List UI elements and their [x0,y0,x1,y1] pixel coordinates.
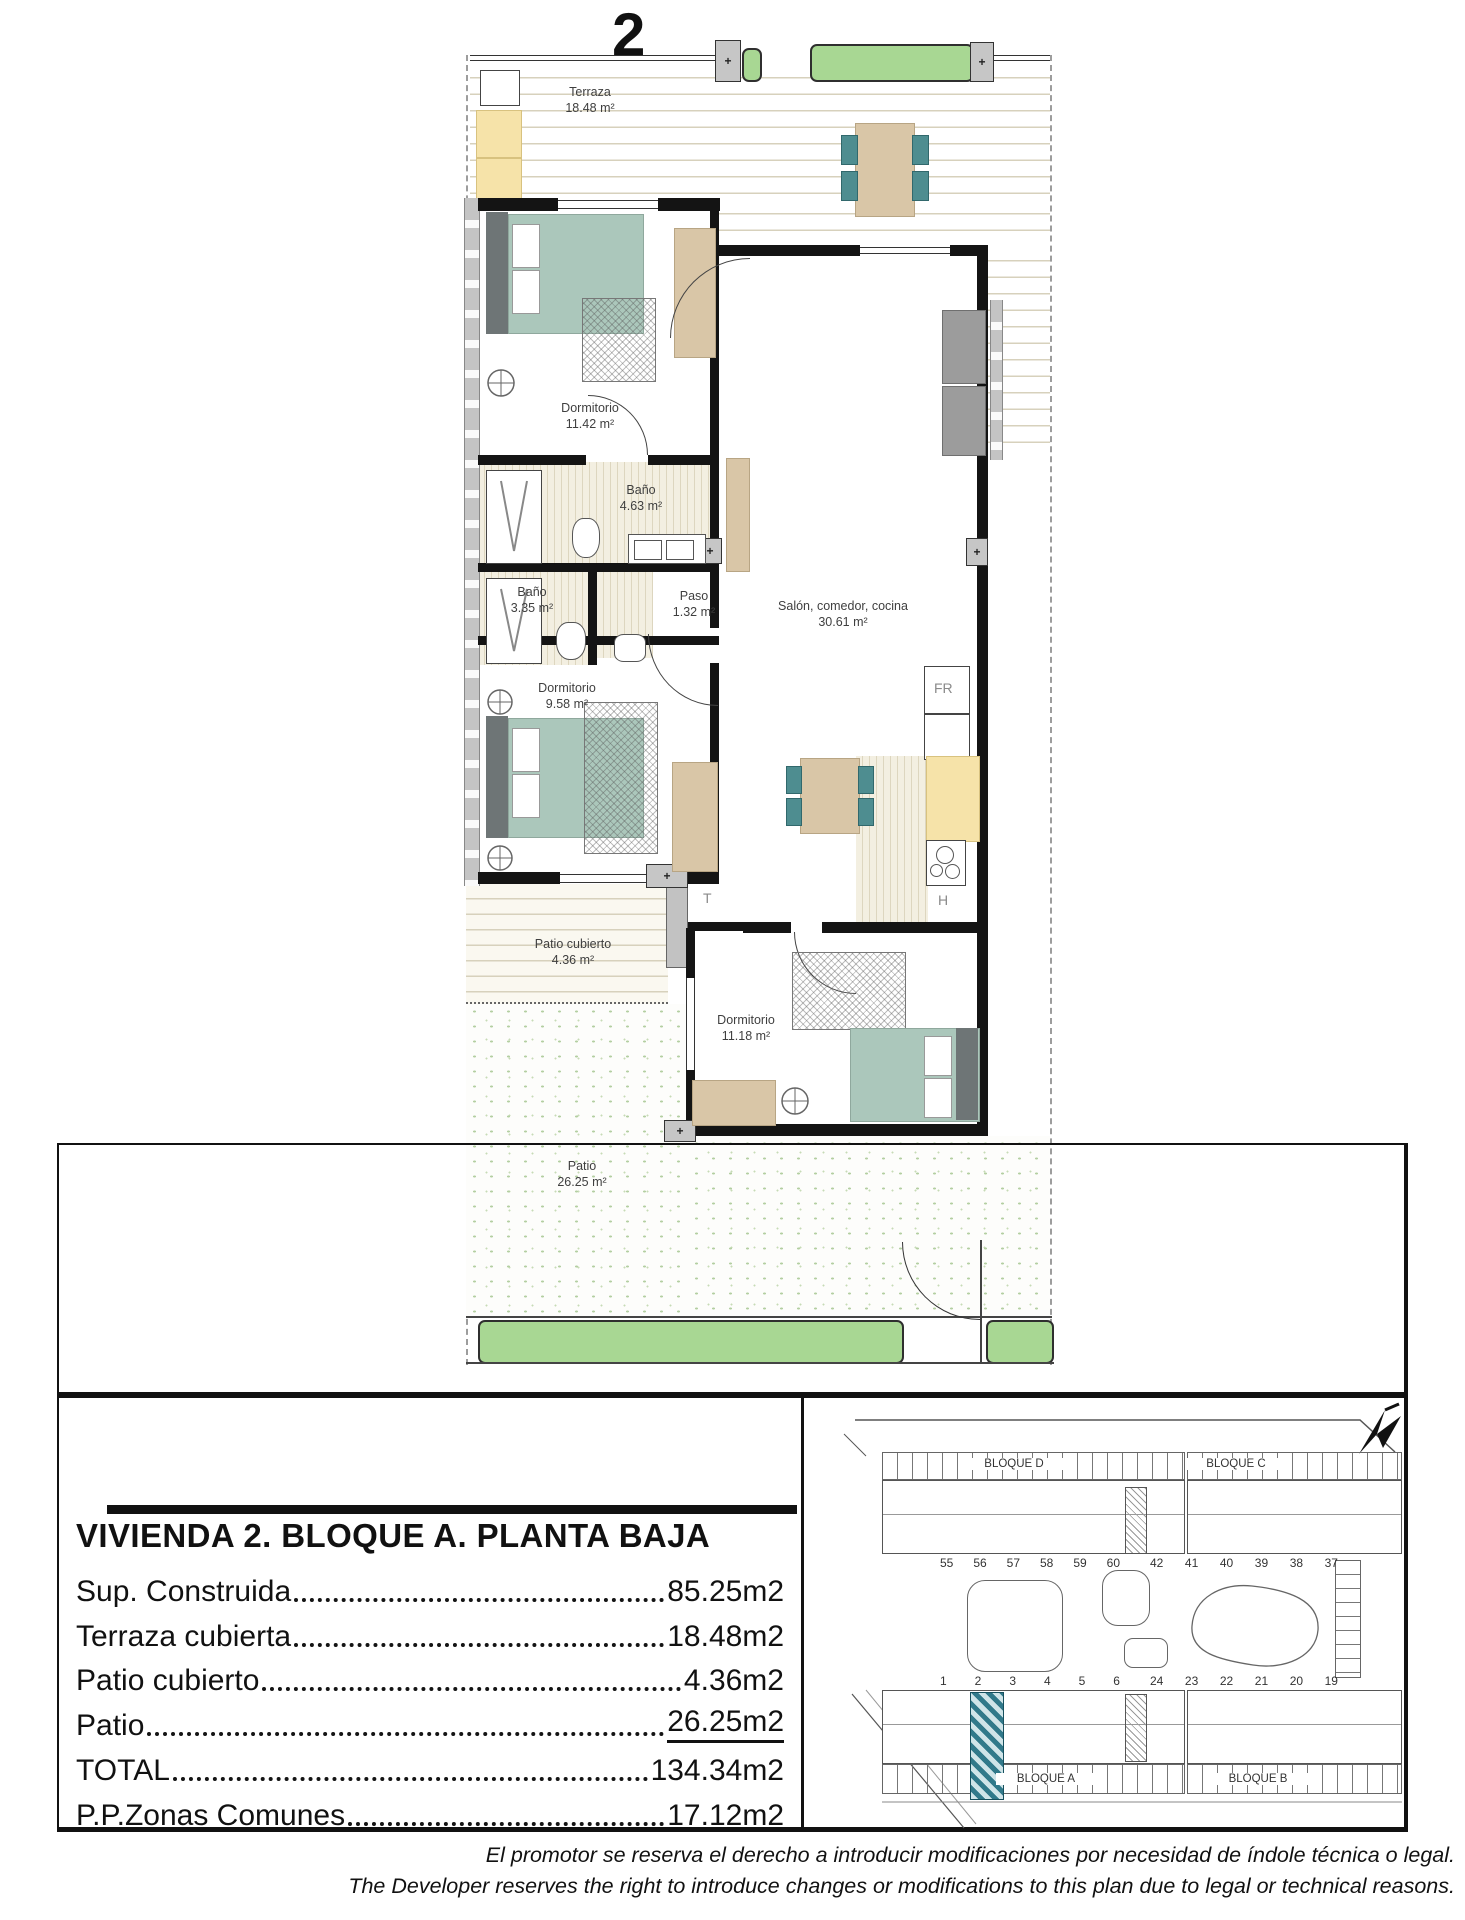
hedge-top-small [742,48,762,82]
site-unit: 20 [1290,1674,1303,1688]
room-label-paso: Paso1.32 m² [673,588,715,621]
pool [967,1580,1063,1672]
pillow [512,774,540,818]
cabinet [726,458,750,572]
site-unit: 3 [1009,1674,1016,1688]
terrace-fence [470,55,718,61]
pillow [924,1036,952,1076]
dining-chair [858,766,874,794]
site-unit: 24 [1150,1674,1163,1688]
site-unit: 6 [1113,1674,1120,1688]
sofa [942,386,986,456]
dining-chair [786,766,802,794]
burner [930,864,943,877]
terrace-decking [470,62,1050,198]
terrace-chair [912,135,929,165]
pillow [924,1078,952,1118]
wall-post: + [966,538,988,566]
north-arrow-icon [1359,1404,1401,1454]
site-unit: 21 [1255,1674,1268,1688]
info-row: Sup. Construida85.25m2 [76,1564,784,1609]
sofa [942,310,986,384]
rug [792,952,906,1030]
site-unit: 19 [1325,1674,1338,1688]
disclaimer-en: The Developer reserves the right to intr… [348,1874,1455,1899]
site-unit: 5 [1079,1674,1086,1688]
storage-box [476,110,522,158]
mat [692,1080,776,1126]
site-unit: 2 [975,1674,982,1688]
terrace-chair [841,135,858,165]
burner [936,846,954,864]
room-label-dormitorio-1: Dormitorio11.42 m² [561,400,619,433]
block-label-c: BLOQUE C [1186,1458,1286,1470]
hob-label: H [938,892,948,908]
title-bar [107,1505,797,1514]
site-unit: 42 [1150,1556,1163,1570]
site-unit: 58 [1040,1556,1053,1570]
site-unit: 55 [940,1556,953,1570]
pool [1124,1638,1168,1668]
dining-chair [786,798,802,826]
pillow [512,270,540,314]
block-label-a: BLOQUE A [996,1773,1096,1785]
site-unit: 56 [973,1556,986,1570]
wardrobe [672,762,718,872]
toilet [556,622,586,660]
hedge-top [810,44,974,82]
wall-post: + [970,42,994,82]
info-row: Terraza cubierta18.48m2 [76,1609,784,1654]
rug [582,298,656,382]
info-row: Patio cubierto4.36m2 [76,1654,784,1699]
terrace-chair [912,171,929,201]
site-unit: 22 [1220,1674,1233,1688]
site-plan: 555657585960 424140393837 123456 2423222… [804,1394,1408,1832]
site-unit: 57 [1007,1556,1020,1570]
dining-table [800,758,860,834]
oven [924,714,970,760]
bed-headboard [956,1028,978,1120]
room-label-patio-cubierto: Patio cubierto4.36 m² [535,936,611,969]
site-unit: 41 [1185,1556,1198,1570]
room-label-dormitorio-3: Dormitorio11.18 m² [717,1012,775,1045]
room-label-terraza: Terraza18.48 m² [565,84,614,117]
ceiling-light-icon [780,1086,810,1121]
floor-plan-page: 2 + + [0,0,1465,1920]
site-unit: 40 [1220,1556,1233,1570]
sink [666,540,694,560]
pool [1102,1570,1150,1626]
info-row: P.P.Zonas Comunes17.12m2 [76,1788,784,1833]
site-unit: 59 [1073,1556,1086,1570]
site-unit: 23 [1185,1674,1198,1688]
room-label-salon: Salón, comedor, cocina30.61 m² [778,598,908,631]
ceiling-light-icon [486,368,516,403]
bed-headboard [486,212,508,334]
terrace-chair [841,171,858,201]
bottom-panel: VIVIENDA 2. BLOQUE A. PLANTA BAJA Sup. C… [57,1143,1408,1832]
unit-numbers-row: 555657585960 [940,1556,1120,1570]
info-row: Patio26.25m2 [76,1698,784,1743]
ceiling-light-icon [486,688,514,721]
burner [945,864,960,879]
dining-chair [858,798,874,826]
sink [634,540,662,560]
unit-numbers-row: 242322212019 [1150,1674,1338,1688]
site-unit: 60 [1107,1556,1120,1570]
terrace-side-table [480,70,520,106]
rug [584,702,658,854]
info-row: TOTAL134.34m2 [76,1743,784,1788]
terrace-dining-table [855,123,915,217]
room-label-bano-2: Baño3.35 m² [511,584,553,617]
site-unit: 4 [1044,1674,1051,1688]
ceiling-light-icon [486,844,514,877]
tap-label: T [703,890,712,906]
block-label-b: BLOQUE B [1208,1773,1308,1785]
room-label-bano-1: Baño4.63 m² [620,482,662,515]
site-unit: 39 [1255,1556,1268,1570]
room-label-dormitorio-2: Dormitorio9.58 m² [538,680,596,713]
wall-post: + [715,40,741,82]
bed-headboard [486,716,508,838]
kitchen-counter [926,756,980,842]
block-label-d: BLOQUE D [964,1458,1064,1470]
toilet [572,518,600,558]
site-unit: 37 [1325,1556,1338,1570]
page-title: VIVIENDA 2. BLOQUE A. PLANTA BAJA [76,1517,788,1555]
shower [486,470,542,564]
sink [614,634,646,662]
site-unit: 38 [1290,1556,1303,1570]
disclaimer-es: El promotor se reserva el derecho a intr… [486,1843,1455,1868]
pillow [512,728,540,772]
fridge: FR [924,666,970,714]
unit-numbers-row: 123456 [940,1674,1120,1688]
site-unit: 1 [940,1674,947,1688]
door-swing [648,634,718,706]
pillow [512,224,540,268]
unit-numbers-row: 424140393837 [1150,1556,1338,1570]
